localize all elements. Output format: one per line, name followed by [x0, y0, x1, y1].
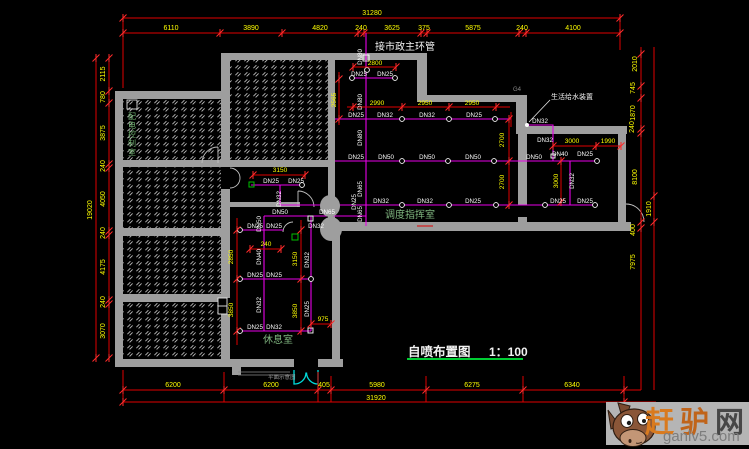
svg-text:3890: 3890: [243, 25, 259, 32]
svg-text:405: 405: [318, 382, 330, 389]
svg-text:DN25: DN25: [577, 151, 593, 158]
svg-text:6200: 6200: [165, 382, 181, 389]
svg-text:4100: 4100: [565, 25, 581, 32]
svg-text:DN80: DN80: [357, 130, 364, 146]
svg-text:975: 975: [318, 316, 329, 323]
svg-text:控: 控: [128, 129, 136, 139]
svg-text:240: 240: [100, 296, 107, 308]
svg-text:DN80: DN80: [357, 94, 364, 110]
svg-text:调度指挥室: 调度指挥室: [385, 208, 435, 221]
svg-text:DN40: DN40: [552, 151, 568, 158]
svg-text:3850: 3850: [228, 302, 235, 317]
svg-text:DN25: DN25: [263, 178, 279, 185]
svg-text:DN40: DN40: [256, 249, 263, 265]
svg-text:DN50: DN50: [465, 154, 481, 161]
svg-text:DN32: DN32: [377, 112, 393, 119]
svg-text:5980: 5980: [369, 382, 385, 389]
svg-text:5875: 5875: [465, 25, 481, 32]
svg-text:6200: 6200: [263, 382, 279, 389]
svg-text:DN32: DN32: [304, 252, 311, 268]
svg-text:2700: 2700: [499, 174, 506, 189]
svg-text:375: 375: [418, 25, 430, 32]
svg-text:3875: 3875: [100, 125, 107, 141]
svg-text:2990: 2990: [370, 100, 385, 107]
svg-text:自喷布置图: 自喷布置图: [408, 344, 471, 359]
svg-text:6275: 6275: [464, 382, 480, 389]
svg-text:制: 制: [128, 138, 136, 148]
svg-text:休息室: 休息室: [263, 333, 293, 346]
svg-text:2115: 2115: [100, 66, 107, 81]
svg-text:31920: 31920: [366, 395, 386, 402]
svg-text:DN65: DN65: [357, 206, 364, 222]
svg-text:240: 240: [629, 121, 636, 133]
svg-text:240: 240: [100, 227, 107, 239]
svg-text:240: 240: [100, 160, 107, 172]
svg-text:室: 室: [128, 147, 136, 157]
svg-text:4820: 4820: [312, 25, 328, 32]
svg-text:配: 配: [128, 112, 136, 121]
svg-text:6340: 6340: [564, 382, 580, 389]
svg-text:DN25: DN25: [266, 272, 282, 279]
svg-text:3000: 3000: [553, 173, 560, 188]
svg-text:3000: 3000: [565, 138, 580, 145]
svg-text:240: 240: [261, 241, 272, 248]
svg-text:2565: 2565: [331, 92, 338, 107]
svg-text:240: 240: [516, 25, 528, 32]
svg-text:DN32: DN32: [308, 223, 324, 230]
svg-text:DN32: DN32: [276, 191, 283, 207]
svg-text:生活给水装置: 生活给水装置: [551, 92, 593, 101]
svg-text:2950: 2950: [465, 100, 480, 107]
svg-text:ganlv5.com: ganlv5.com: [663, 428, 740, 445]
svg-text:接市政主环管: 接市政主环管: [375, 40, 435, 53]
svg-text:G4: G4: [513, 87, 522, 93]
svg-text:DN50: DN50: [378, 154, 394, 161]
svg-text:DN50: DN50: [419, 154, 435, 161]
svg-text:DN25: DN25: [247, 272, 263, 279]
svg-text:3150: 3150: [273, 167, 288, 174]
svg-text:DN25: DN25: [304, 301, 311, 317]
svg-text:31280: 31280: [362, 10, 382, 17]
svg-text:6110: 6110: [163, 25, 178, 32]
svg-text:DN80: DN80: [357, 49, 364, 65]
svg-text:DN25: DN25: [348, 112, 364, 119]
svg-text:DN25: DN25: [266, 223, 282, 230]
svg-text:1：100: 1：100: [489, 345, 528, 359]
svg-text:DN32: DN32: [266, 324, 282, 331]
svg-text:DN25: DN25: [577, 198, 593, 205]
svg-text:4050: 4050: [100, 191, 107, 207]
svg-text:DN65: DN65: [357, 181, 364, 197]
svg-text:DN32: DN32: [373, 198, 389, 205]
svg-text:DN32: DN32: [532, 118, 548, 125]
svg-text:2850: 2850: [228, 249, 235, 264]
svg-text:DN25: DN25: [348, 154, 364, 161]
svg-text:1870: 1870: [630, 105, 637, 121]
svg-text:DN25: DN25: [351, 71, 367, 78]
svg-text:400: 400: [630, 224, 637, 236]
svg-text:2800: 2800: [368, 60, 383, 67]
svg-text:电: 电: [128, 120, 136, 130]
svg-text:3070: 3070: [100, 323, 107, 339]
svg-text:DN25: DN25: [377, 71, 393, 78]
svg-text:DN50: DN50: [526, 154, 542, 161]
svg-text:3850: 3850: [292, 303, 299, 318]
svg-text:DN25: DN25: [288, 178, 304, 185]
svg-text:3625: 3625: [384, 25, 400, 32]
svg-text:2010: 2010: [632, 56, 639, 72]
svg-text:DN25: DN25: [465, 198, 481, 205]
svg-text:DN32: DN32: [256, 297, 263, 313]
svg-text:240: 240: [355, 25, 367, 32]
svg-text:3150: 3150: [292, 251, 299, 266]
svg-text:平面示意图: 平面示意图: [268, 373, 296, 381]
svg-text:DN32: DN32: [417, 198, 433, 205]
svg-text:19020: 19020: [87, 200, 94, 220]
svg-text:8100: 8100: [632, 169, 639, 185]
svg-text:DN25: DN25: [550, 198, 566, 205]
svg-text:745: 745: [630, 82, 637, 94]
svg-text:DN25: DN25: [466, 112, 482, 119]
svg-text:1990: 1990: [601, 138, 616, 145]
svg-text:DN32: DN32: [537, 137, 553, 144]
svg-text:DN65: DN65: [319, 209, 335, 216]
svg-text:DN32: DN32: [569, 173, 576, 189]
svg-text:DN32: DN32: [419, 112, 435, 119]
svg-text:2950: 2950: [418, 100, 433, 107]
svg-text:DN25: DN25: [247, 324, 263, 331]
svg-text:2700: 2700: [499, 132, 506, 147]
svg-text:780: 780: [100, 91, 107, 103]
svg-text:7975: 7975: [630, 254, 637, 270]
svg-text:DN50: DN50: [256, 216, 263, 232]
svg-text:DN50: DN50: [272, 209, 288, 216]
svg-text:1910: 1910: [646, 201, 653, 217]
svg-text:4175: 4175: [100, 259, 107, 275]
